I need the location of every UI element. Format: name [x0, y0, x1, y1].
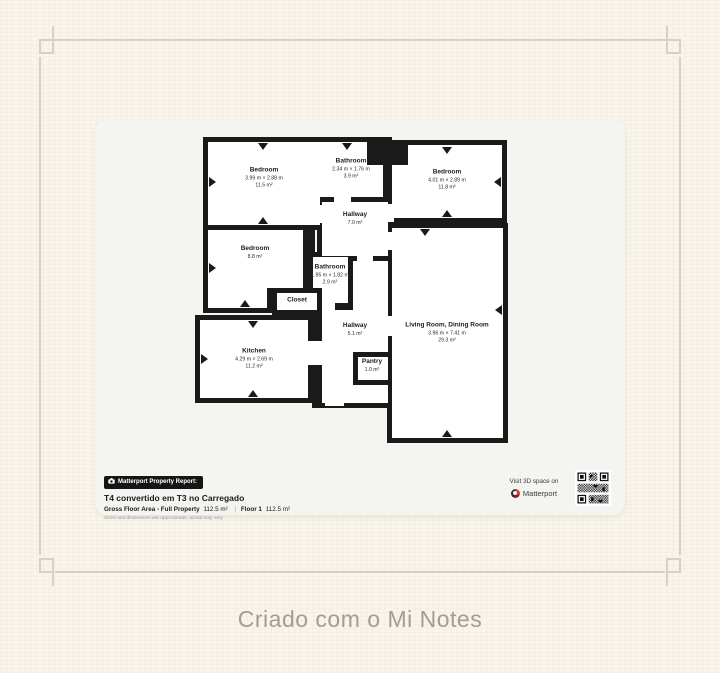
room-name: Closet: [287, 297, 307, 306]
matterport-report-badge: Matterport Property Report:: [104, 476, 203, 489]
floor-area-line: Gross Floor Area - Full Property 112.5 m…: [104, 506, 292, 513]
visit-text: Visit 3D space on: [494, 478, 574, 485]
brand-name: Matterport: [523, 489, 557, 498]
room-name: Bedroom: [245, 167, 283, 176]
room-name: Bathroom: [311, 264, 349, 273]
room-name: Living Room, Dining Room: [405, 322, 488, 331]
room-area: 5.1 m²: [343, 331, 367, 338]
report-title: T4 convertido em T3 no Carregado: [104, 493, 292, 503]
room-dims: 3.99 m × 2.88 m: [245, 175, 283, 182]
room-label-bathroom-1: Bathroom 2.34 m × 1.76 m 3.9 m²: [332, 158, 370, 181]
mi-notes-caption: Criado com o Mi Notes: [0, 606, 720, 633]
room-label-bedroom-3: Bedroom 8.8 m²: [241, 245, 270, 261]
matterport-brand-row: Matterport: [494, 489, 574, 498]
room-name: Pantry: [362, 358, 382, 367]
room-dims: 4.29 m × 2.69 m: [235, 356, 273, 363]
room-area: 11.2 m²: [235, 363, 273, 370]
room-label-living-room: Living Room, Dining Room 3.96 m × 7.41 m…: [405, 322, 488, 345]
room-area: 1.0 m²: [362, 367, 382, 374]
room-label-bathroom-2: Bathroom 1.95 m × 1.82 m 2.9 m²: [311, 264, 349, 287]
room-dims: 2.34 m × 1.76 m: [332, 166, 370, 173]
room-label-pantry: Pantry 1.0 m²: [362, 358, 382, 374]
separator: |: [235, 506, 237, 513]
gross-floor-area-value: 112.5 m²: [203, 506, 227, 513]
room-area: 11.8 m²: [428, 184, 466, 191]
room-name: Bathroom: [332, 158, 370, 167]
room-dims: 3.96 m × 7.41 m: [405, 330, 488, 337]
floorplan-report-card: Bedroom 3.99 m × 2.88 m 11.5 m² Bathroom…: [95, 120, 625, 515]
room-area: 7.0 m²: [343, 220, 367, 227]
qr-code: [575, 470, 611, 506]
room-label-hallway-1: Hallway 7.0 m²: [343, 211, 367, 227]
room-name: Hallway: [343, 322, 367, 331]
room-area: 2.9 m²: [311, 279, 349, 286]
room-label-bedroom-2: Bedroom 4.01 m × 2.89 m 11.8 m²: [428, 169, 466, 192]
floor-value: 112.5 m²: [266, 506, 290, 513]
floor-label: Floor 1: [241, 506, 262, 513]
room-label-bedroom-1: Bedroom 3.99 m × 2.88 m 11.5 m²: [245, 167, 283, 190]
room-dims: 1.95 m × 1.82 m: [311, 272, 349, 279]
visit-3d-space-block: Visit 3D space on Matterport: [494, 478, 574, 498]
mi-notes-share-page: { "page": { "caption": "Criado com o Mi …: [0, 0, 720, 673]
room-name: Hallway: [343, 211, 367, 220]
camera-icon: [108, 478, 115, 486]
room-label-closet: Closet: [287, 297, 307, 306]
room-area: 8.8 m²: [241, 254, 270, 261]
room-dims: 4.01 m × 2.89 m: [428, 177, 466, 184]
room-name: Bedroom: [428, 169, 466, 178]
matterport-logo-icon: [511, 489, 520, 498]
room-area: 3.9 m²: [332, 173, 370, 180]
room-label-hallway-2: Hallway 5.1 m²: [343, 322, 367, 338]
room-area: 29.3 m²: [405, 337, 488, 344]
badge-label: Matterport Property Report:: [118, 479, 197, 485]
room-name: Bedroom: [241, 245, 270, 254]
room-name: Kitchen: [235, 348, 273, 357]
disclaimer-text: Sizes and dimensions are approximate, ac…: [104, 516, 292, 521]
report-info: Matterport Property Report: T4 convertid…: [104, 471, 292, 521]
gross-floor-area-label: Gross Floor Area - Full Property: [104, 506, 200, 513]
room-label-kitchen: Kitchen 4.29 m × 2.69 m 11.2 m²: [235, 348, 273, 371]
room-area: 11.5 m²: [245, 182, 283, 189]
